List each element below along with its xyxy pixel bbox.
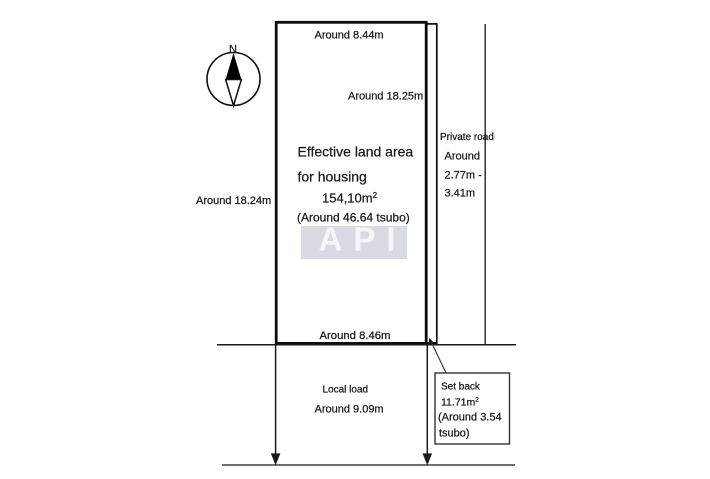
svg-text:Around 8.44m: Around 8.44m <box>315 30 384 42</box>
svg-text:tsubo): tsubo) <box>439 428 470 440</box>
svg-text:Around 8.46m: Around 8.46m <box>320 330 391 342</box>
svg-text:for housing: for housing <box>298 169 367 185</box>
svg-text:2.77m -: 2.77m - <box>445 170 483 182</box>
svg-text:Around 9.09m: Around 9.09m <box>315 404 384 416</box>
svg-text:Around: Around <box>445 151 480 163</box>
svg-text:(Around 3.54: (Around 3.54 <box>438 412 502 424</box>
svg-text:154,10m2: 154,10m2 <box>322 191 378 206</box>
svg-text:Local load: Local load <box>323 385 369 396</box>
svg-text:Around 18.25m: Around 18.25m <box>348 91 423 103</box>
svg-text:N: N <box>229 44 237 56</box>
svg-text:Private road: Private road <box>440 132 494 143</box>
svg-text:Set back: Set back <box>441 382 481 393</box>
svg-text:Effective land area: Effective land area <box>298 144 414 160</box>
svg-text:3.41m: 3.41m <box>445 188 476 200</box>
svg-text:Around 18.24m: Around 18.24m <box>196 195 271 207</box>
svg-text:11.71m2: 11.71m2 <box>441 397 479 409</box>
svg-text:API: API <box>319 221 407 258</box>
